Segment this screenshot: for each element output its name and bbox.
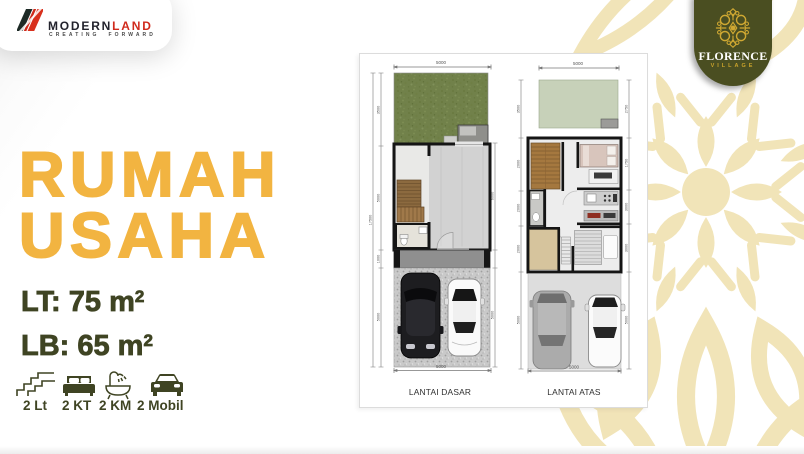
svg-text:1750: 1750 xyxy=(625,159,629,167)
svg-text:3500: 3500 xyxy=(517,105,521,113)
svg-text:5000: 5000 xyxy=(625,316,629,324)
svg-text:1000: 1000 xyxy=(377,255,381,263)
svg-text:5000: 5000 xyxy=(377,313,381,321)
svg-text:3000: 3000 xyxy=(625,203,629,211)
svg-text:2000: 2000 xyxy=(517,160,521,168)
svg-text:LANTAI ATAS: LANTAI ATAS xyxy=(547,387,601,397)
svg-text:17500: 17500 xyxy=(369,215,373,226)
svg-text:2750: 2750 xyxy=(625,105,629,113)
svg-text:5000: 5000 xyxy=(517,316,521,324)
svg-text:2000: 2000 xyxy=(517,245,521,253)
svg-text:5000: 5000 xyxy=(491,311,495,319)
svg-text:LANTAI DASAR: LANTAI DASAR xyxy=(409,387,471,397)
svg-text:2000: 2000 xyxy=(517,204,521,212)
svg-text:5000: 5000 xyxy=(436,60,447,65)
svg-text:3500: 3500 xyxy=(377,106,381,114)
svg-text:5000: 5000 xyxy=(569,365,580,370)
svg-text:3000: 3000 xyxy=(625,244,629,252)
svg-text:5000: 5000 xyxy=(573,61,584,66)
svg-text:5000: 5000 xyxy=(377,194,381,202)
svg-text:5000: 5000 xyxy=(436,364,447,369)
